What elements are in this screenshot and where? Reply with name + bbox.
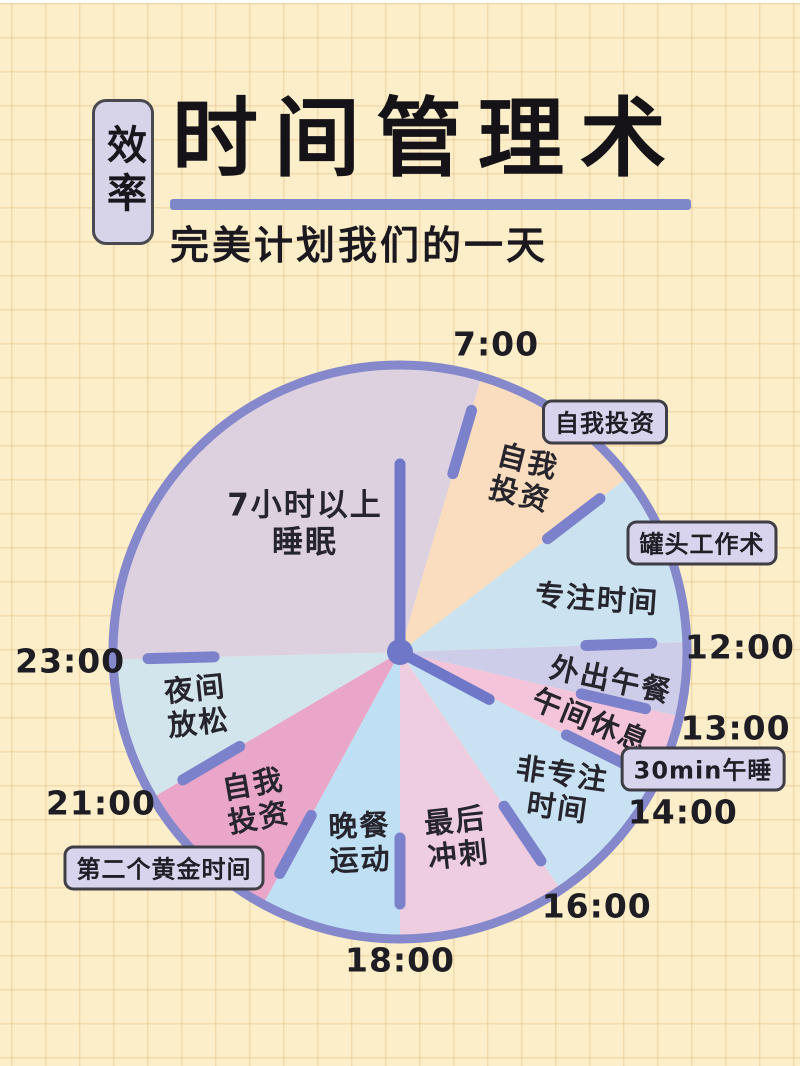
hour-boundary-tick-2 — [586, 643, 652, 645]
hour-boundary-tick-9 — [148, 657, 214, 659]
day-clock-chart — [0, 0, 800, 1066]
clock-center-dot — [387, 639, 413, 665]
